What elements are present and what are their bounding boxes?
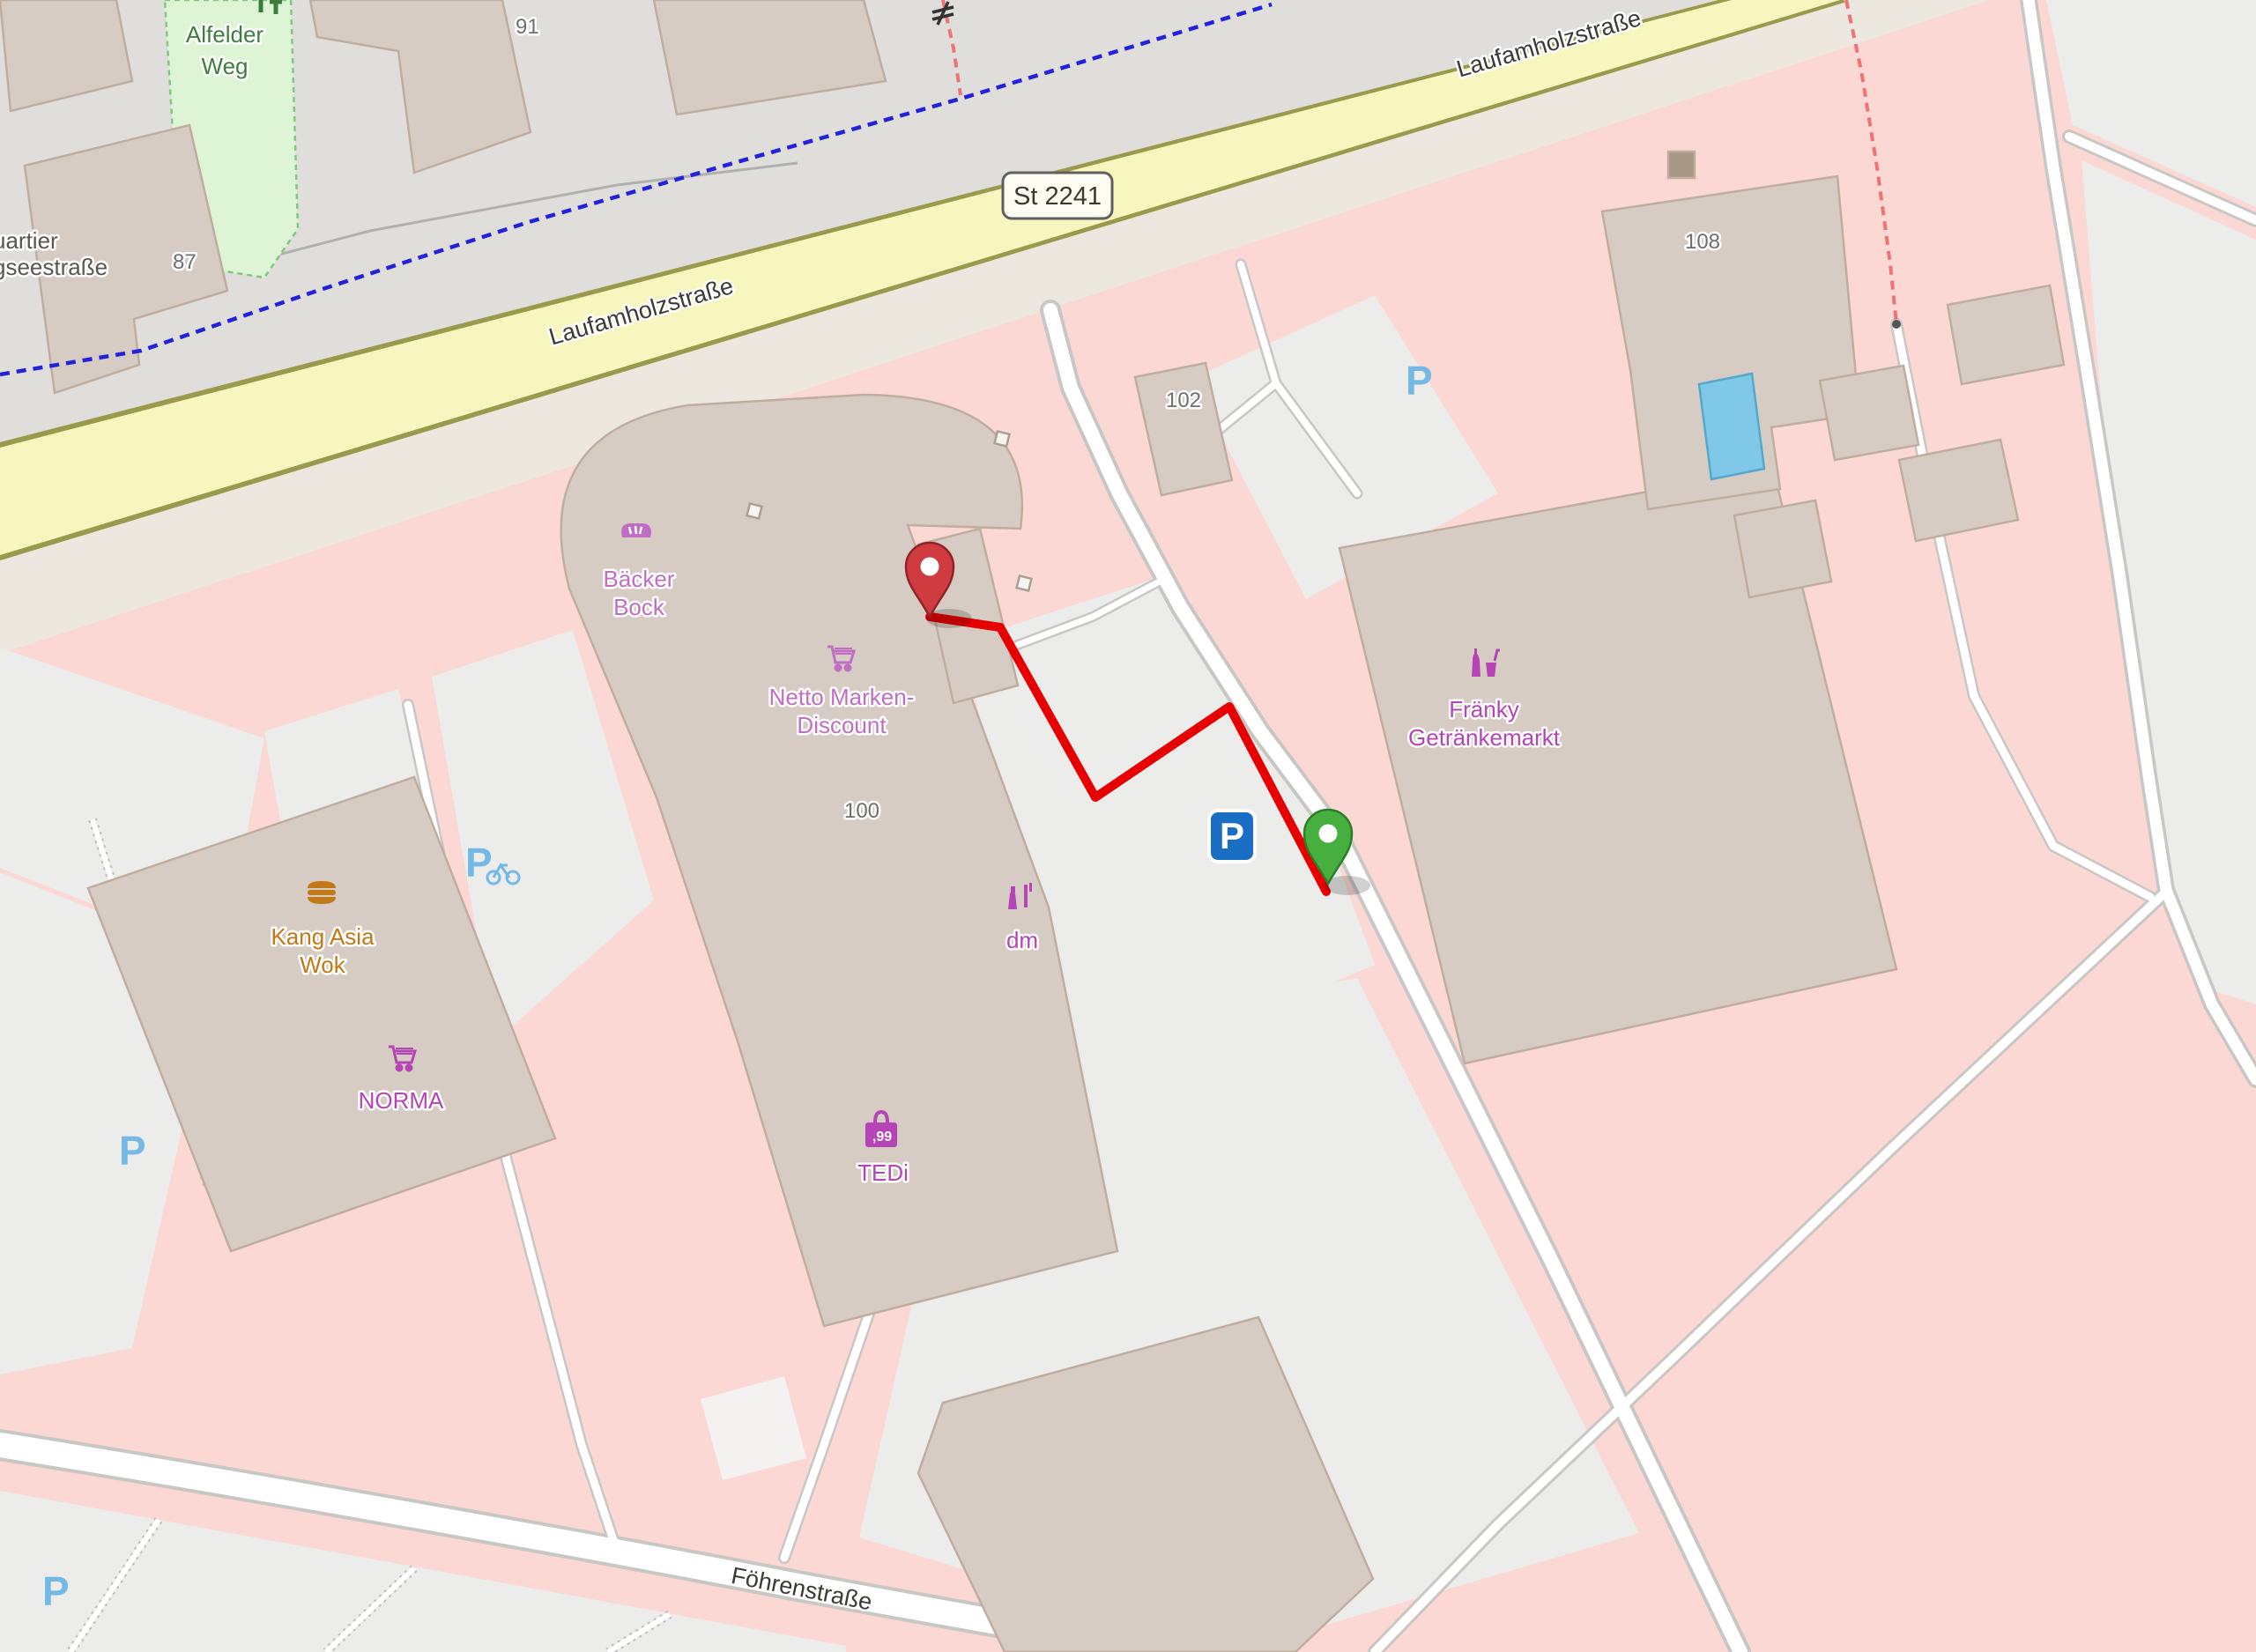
- svg-text:dm: dm: [1006, 927, 1038, 953]
- parking-letter-west: P: [119, 1128, 146, 1174]
- route-shield: St 2241: [1003, 173, 1112, 219]
- housenumber-87: 87: [173, 250, 197, 274]
- svg-text:Fränky: Fränky: [1449, 696, 1518, 722]
- swimming-pool: [1699, 374, 1764, 479]
- housenumber-102: 102: [1166, 389, 1201, 412]
- pin-hole: [921, 558, 939, 576]
- housenumber-108: 108: [1685, 230, 1720, 254]
- district-label-line1: uartier: [0, 227, 58, 254]
- svg-text:Wok: Wok: [300, 952, 346, 978]
- map-canvas[interactable]: Laufamholzstraße Laufamholzstraße Föhren…: [0, 0, 2256, 1652]
- path-node: [1892, 320, 1901, 329]
- svg-text:Kang Asia: Kang Asia: [271, 923, 375, 950]
- burger-icon: [308, 881, 336, 904]
- playground-label-line1: Alfelder: [186, 21, 263, 48]
- district-label-line2: gseestraße: [0, 254, 108, 280]
- svg-text:NORMA: NORMA: [359, 1087, 444, 1114]
- svg-text:,99: ,99: [872, 1130, 892, 1145]
- svg-text:Discount: Discount: [797, 712, 887, 738]
- parking-badge[interactable]: P: [1209, 811, 1255, 862]
- map-viewport[interactable]: Laufamholzstraße Laufamholzstraße Föhren…: [0, 0, 2256, 1652]
- svg-text:Getränkemarkt: Getränkemarkt: [1408, 724, 1561, 751]
- bread-icon: [621, 523, 651, 537]
- svg-text:Netto Marken-: Netto Marken-: [769, 684, 915, 710]
- svg-text:Bock: Bock: [613, 594, 665, 620]
- parking-letter-south: P: [42, 1568, 70, 1614]
- playground-label-line2: Weg: [202, 53, 249, 79]
- parking-letter-east: P: [1406, 358, 1433, 404]
- svg-text:St 2241: St 2241: [1013, 182, 1102, 211]
- pin-hole: [1319, 825, 1338, 843]
- svg-text:Bäcker: Bäcker: [604, 566, 675, 592]
- svg-text:P: P: [1220, 815, 1244, 856]
- svg-text:TEDi: TEDi: [857, 1159, 909, 1186]
- housenumber-91: 91: [516, 15, 539, 39]
- housenumber-100: 100: [844, 799, 879, 823]
